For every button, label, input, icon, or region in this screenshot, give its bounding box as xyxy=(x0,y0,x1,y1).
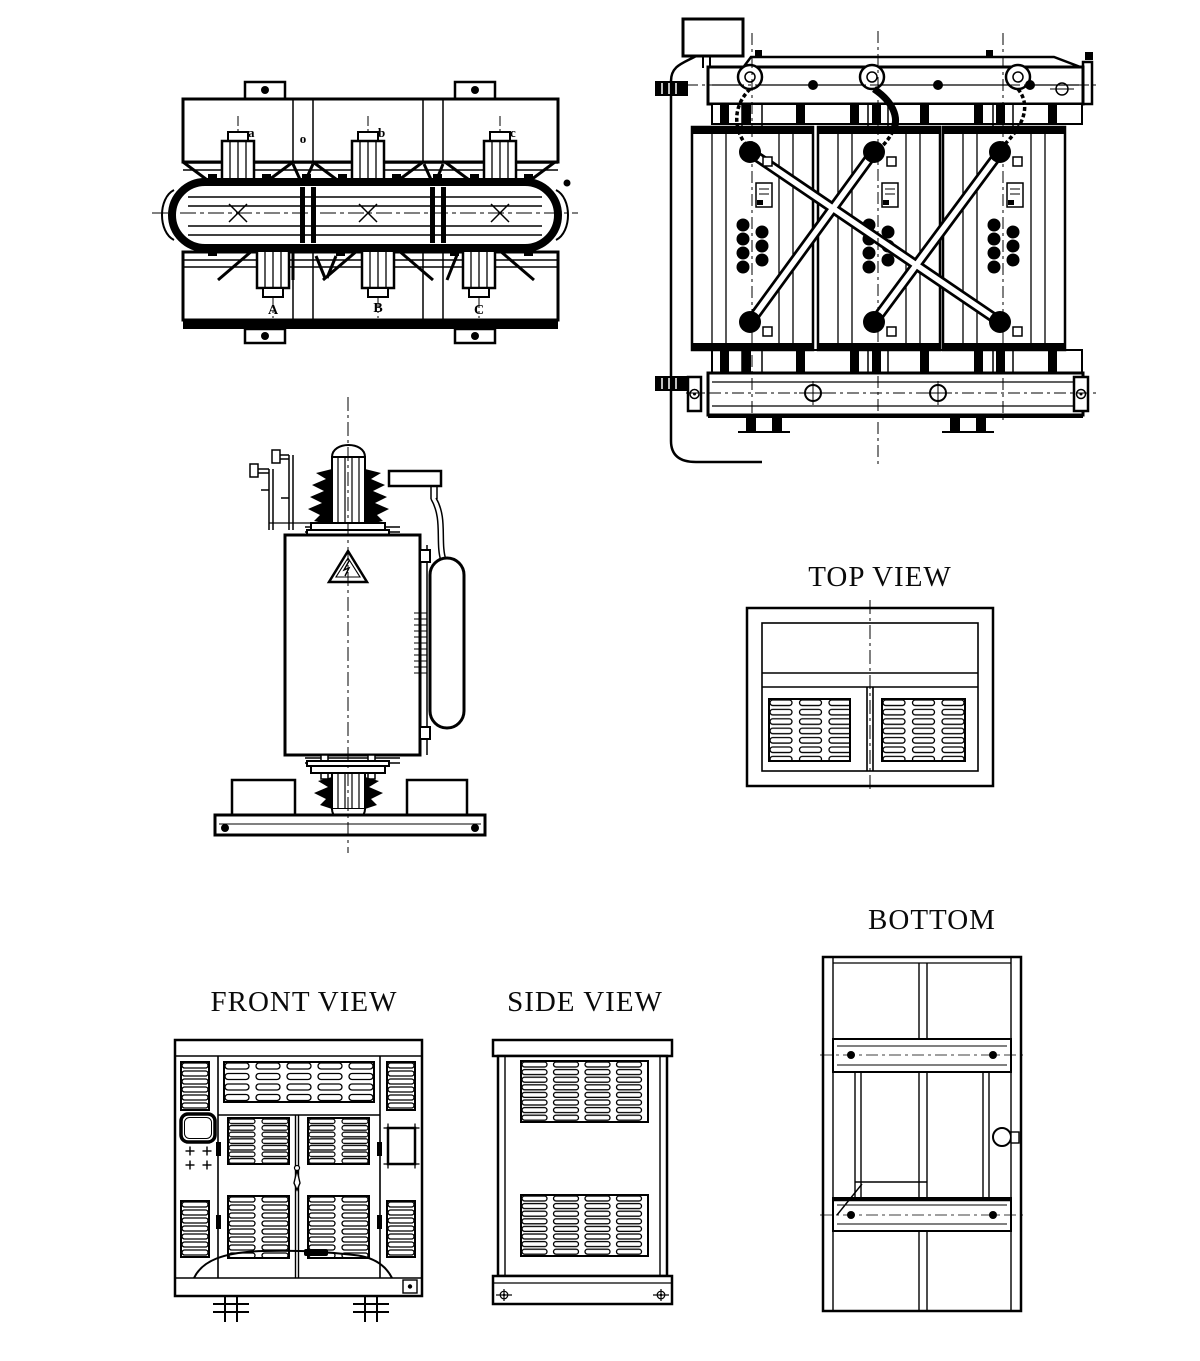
engineering-drawing-sheet: a o b c A B C xyxy=(0,0,1200,1361)
terminal-label-o: o xyxy=(300,131,307,146)
core-side-view-drawing xyxy=(205,395,495,855)
terminal-label-B: B xyxy=(373,301,382,316)
core-plan-view-drawing: a o b c A B C xyxy=(150,50,580,350)
terminal-label-A: A xyxy=(268,303,279,318)
terminal-label-C: C xyxy=(474,303,484,318)
enclosure-side-view-drawing xyxy=(490,1038,676,1308)
enclosure-bottom-view-drawing xyxy=(820,953,1024,1313)
enclosure-top-view-drawing xyxy=(742,600,998,795)
top-view-title: TOP VIEW xyxy=(780,561,980,594)
terminal-label-c: c xyxy=(510,125,516,140)
core-front-view-drawing xyxy=(650,5,1100,470)
front-view-title: FRONT VIEW xyxy=(174,986,434,1019)
enclosure-front-view-drawing xyxy=(168,1038,430,1330)
terminal-label-a: a xyxy=(248,125,255,140)
terminal-label-b: b xyxy=(378,125,385,140)
side-view-title: SIDE VIEW xyxy=(485,986,685,1019)
bottom-view-title: BOTTOM xyxy=(832,904,1032,937)
